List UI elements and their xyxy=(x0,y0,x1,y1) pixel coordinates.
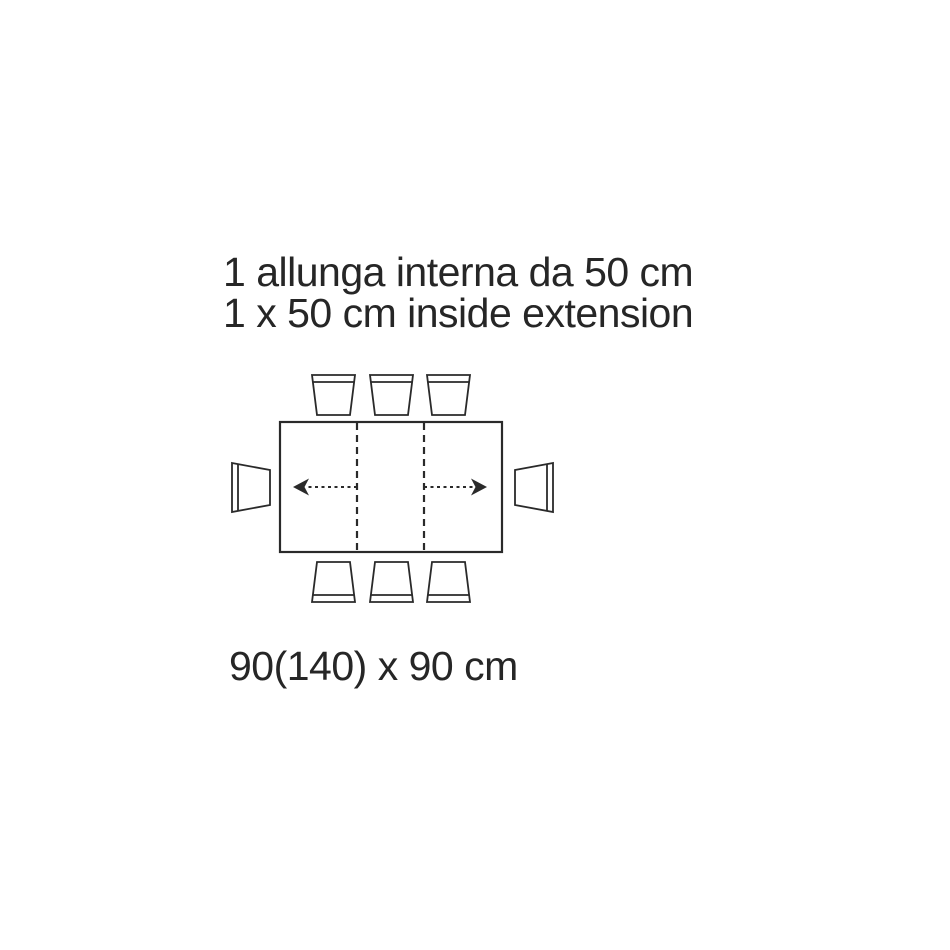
chair-top-2 xyxy=(370,375,413,415)
chair-top-3 xyxy=(427,375,470,415)
product-dimension-diagram: 1 allunga interna da 50 cm 1 x 50 cm ins… xyxy=(0,0,950,950)
chair-bottom-3 xyxy=(427,562,470,602)
caption-line-italian: 1 allunga interna da 50 cm xyxy=(223,252,693,293)
table-plan-drawing xyxy=(210,365,570,615)
extension-arrow-right xyxy=(424,479,487,496)
chair-bottom-2 xyxy=(370,562,413,602)
chair-bottom-1 xyxy=(312,562,355,602)
table-top xyxy=(280,422,502,552)
dimensions-label: 90(140) x 90 cm xyxy=(229,644,518,688)
extension-arrow-left xyxy=(293,479,357,496)
chair-top-1 xyxy=(312,375,355,415)
caption-line-english: 1 x 50 cm inside extension xyxy=(223,293,693,334)
chair-left xyxy=(232,463,270,512)
chair-right xyxy=(515,463,553,512)
caption: 1 allunga interna da 50 cm 1 x 50 cm ins… xyxy=(223,252,693,334)
